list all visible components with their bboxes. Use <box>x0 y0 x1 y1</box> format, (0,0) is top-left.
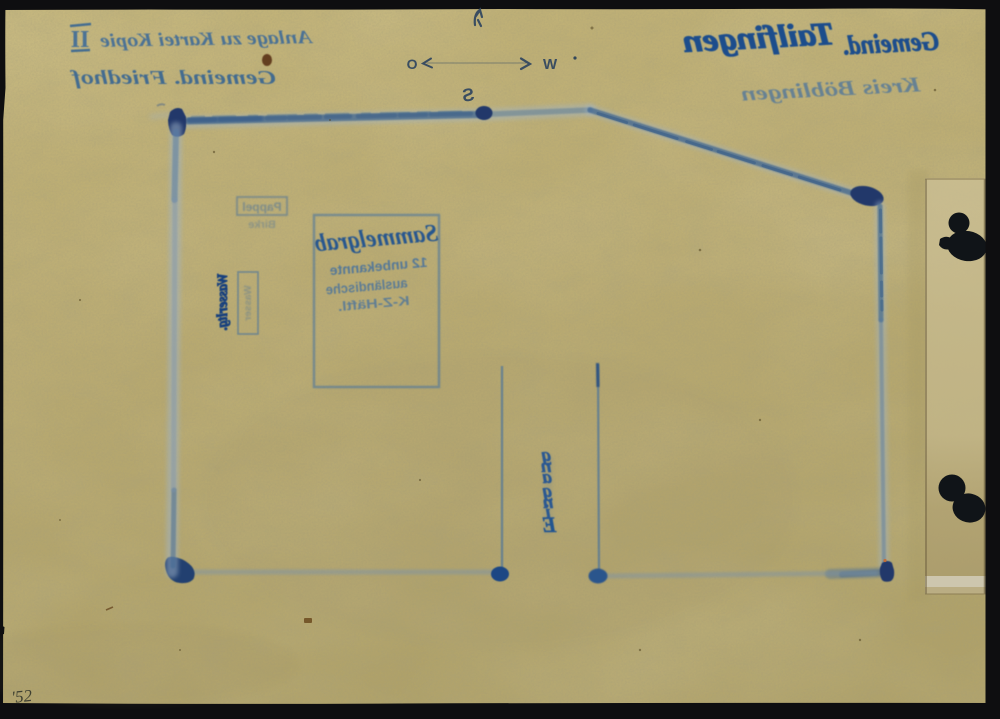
svg-text:Gemeind.: Gemeind. <box>841 25 939 60</box>
svg-text:Wasser: Wasser <box>243 285 254 320</box>
svg-text:Pappel: Pappel <box>242 200 281 214</box>
svg-text:'52: '52 <box>10 686 33 707</box>
svg-text:Wasserltg.: Wasserltg. <box>215 273 231 331</box>
svg-text:Gemeind. Friedhof: Gemeind. Friedhof <box>69 67 276 89</box>
svg-text:Anlage zu Kartei Kopie: Anlage zu Kartei Kopie <box>99 27 313 52</box>
svg-text:O: O <box>406 56 417 72</box>
svg-text:g: g <box>541 445 552 466</box>
svg-text:Birke: Birke <box>248 219 276 231</box>
svg-text:W: W <box>542 56 557 73</box>
